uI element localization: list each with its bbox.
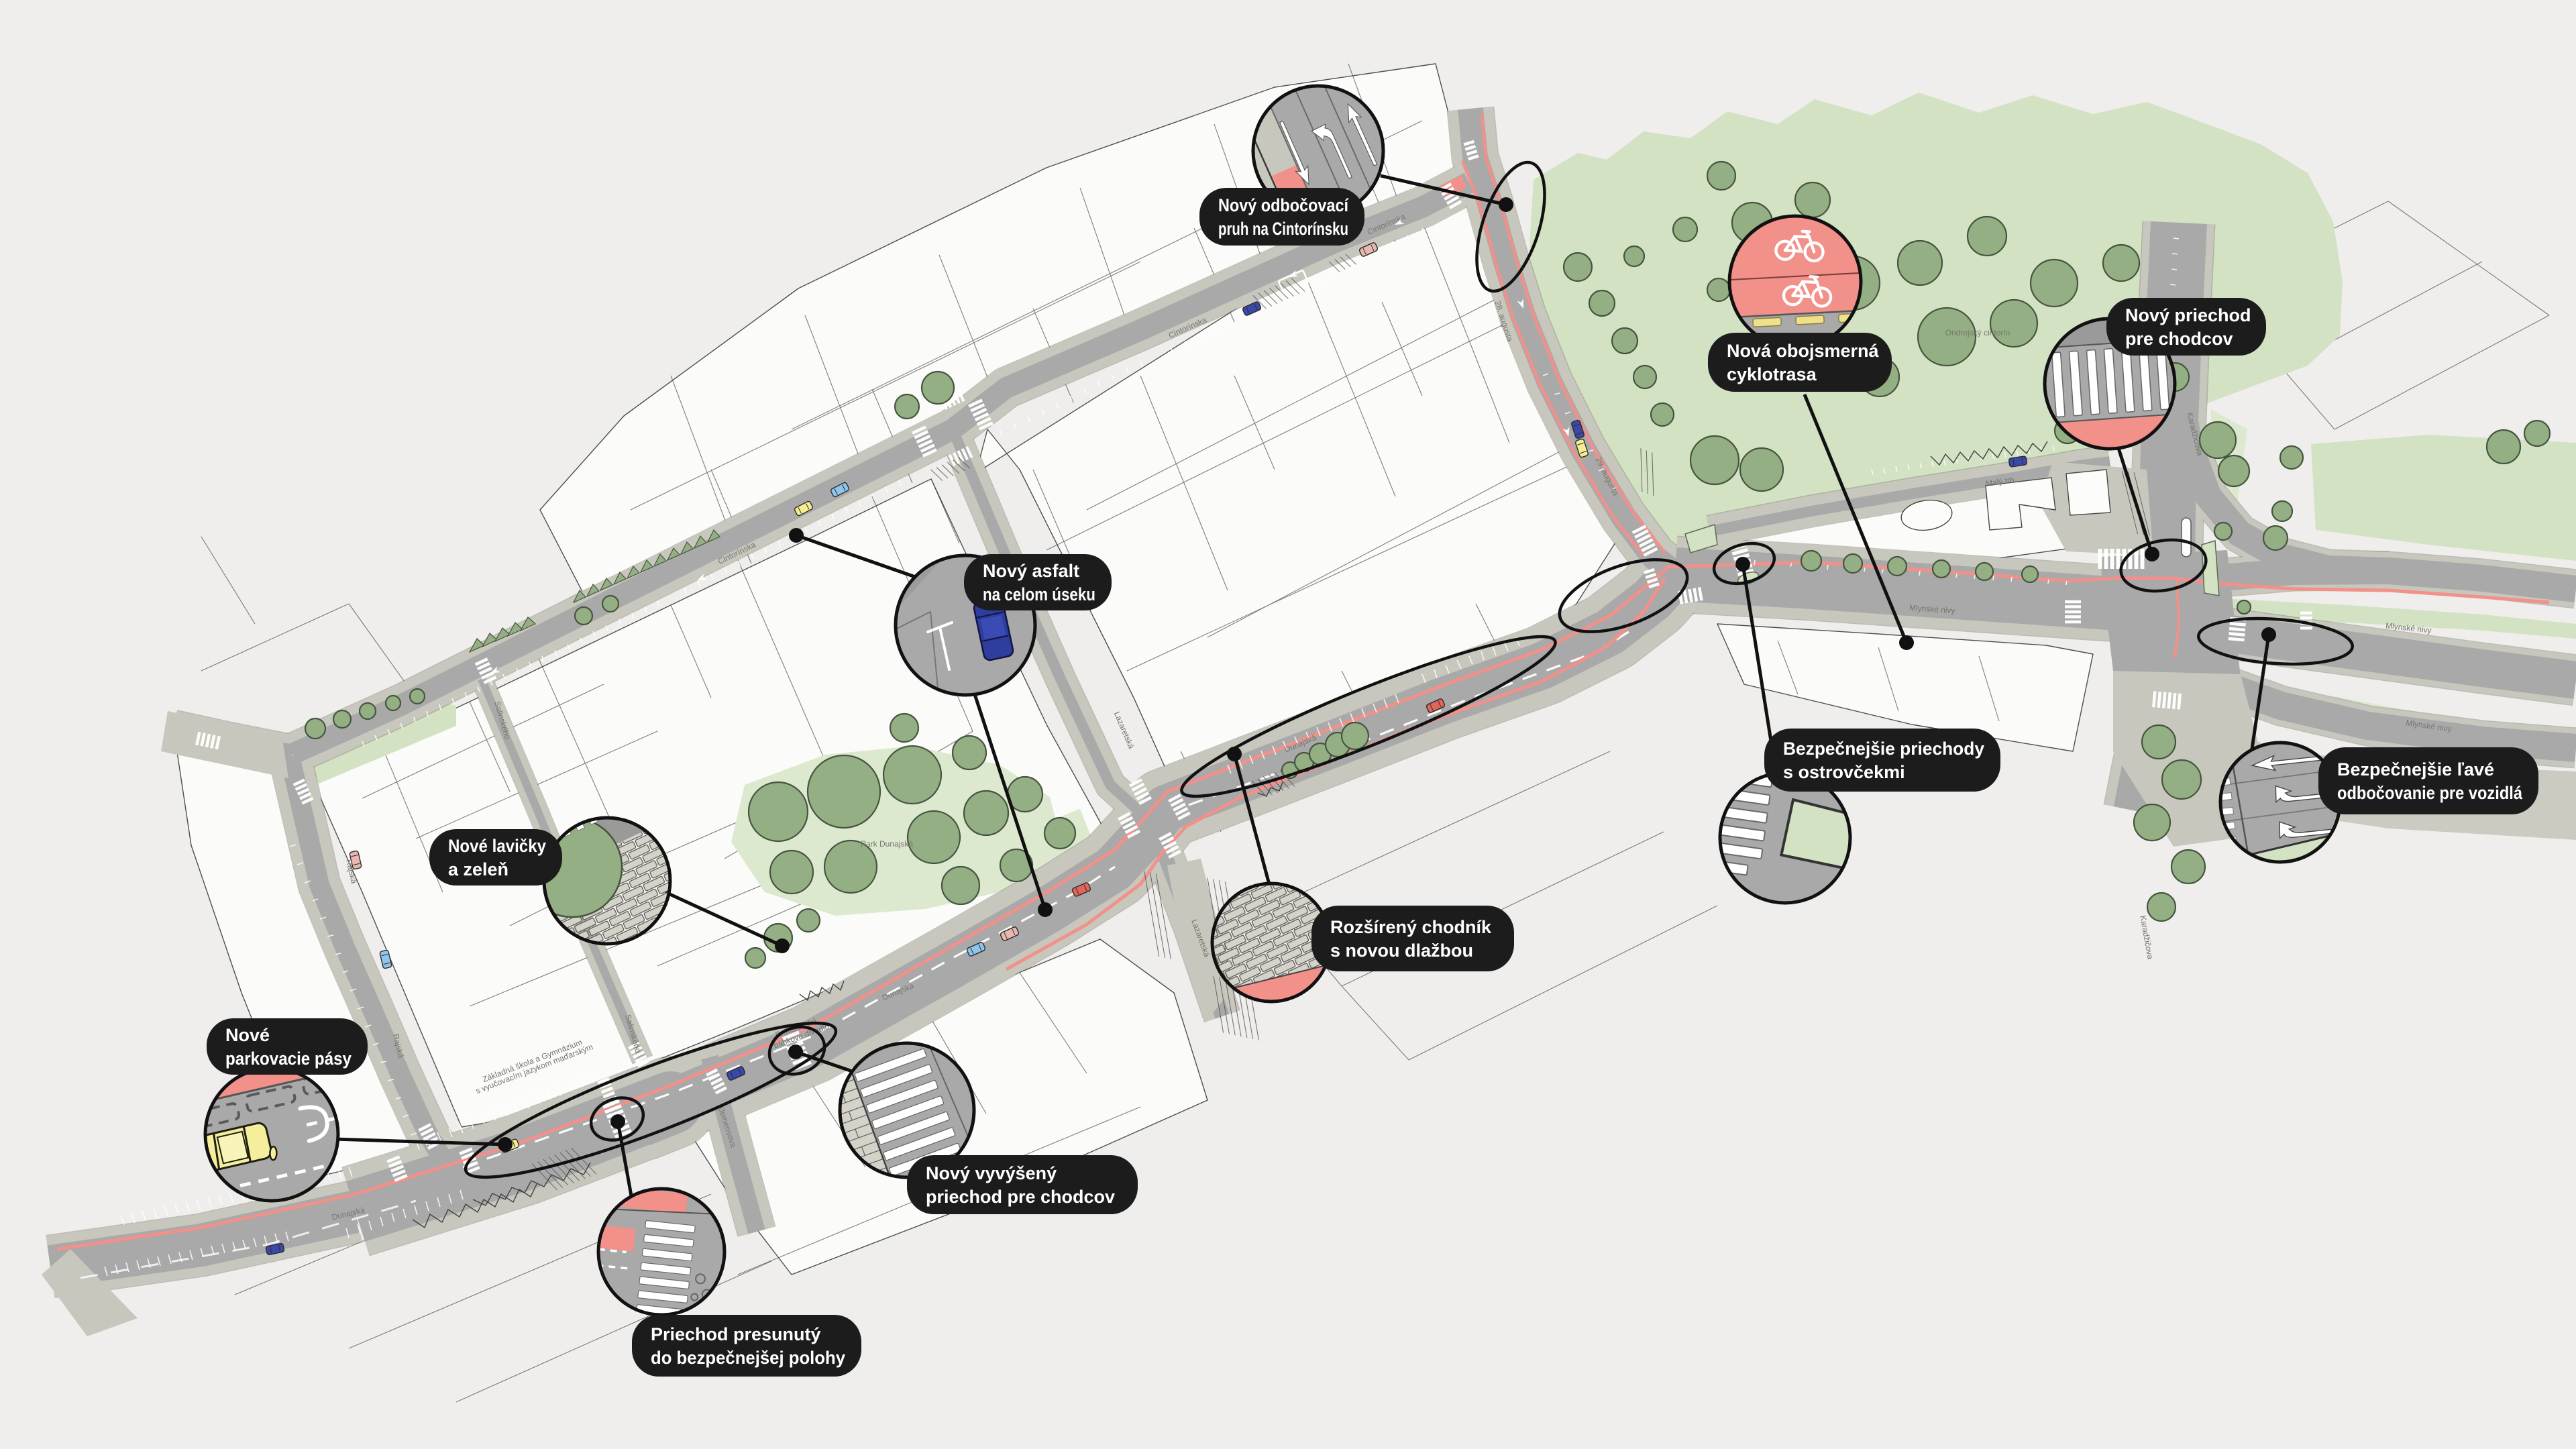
svg-text:s novou dlažbou: s novou dlažbou: [1330, 941, 1473, 961]
svg-text:Bezpečnejšie priechody: Bezpečnejšie priechody: [1783, 739, 1984, 759]
svg-text:Nové: Nové: [225, 1025, 270, 1045]
svg-text:Park Dunajská: Park Dunajská: [861, 839, 913, 849]
svg-text:parkovacie pásy: parkovacie pásy: [225, 1049, 352, 1069]
svg-text:do bezpečnejšej polohy: do bezpečnejšej polohy: [651, 1348, 845, 1368]
svg-text:odbočovanie pre vozidlá: odbočovanie pre vozidlá: [2337, 783, 2523, 803]
svg-text:s ostrovčekmi: s ostrovčekmi: [1783, 762, 1905, 782]
svg-text:Nové lavičky: Nové lavičky: [448, 836, 546, 856]
svg-text:pre chodcov: pre chodcov: [2125, 329, 2233, 349]
svg-text:pruh na Cintorínsku: pruh na Cintorínsku: [1218, 219, 1348, 239]
svg-text:Nový odbočovací: Nový odbočovací: [1218, 195, 1349, 215]
svg-text:Rozšírený chodník: Rozšírený chodník: [1330, 917, 1492, 937]
svg-text:na celom úseku: na celom úseku: [983, 584, 1095, 604]
svg-text:Priechod presunutý: Priechod presunutý: [651, 1324, 821, 1344]
svg-text:Nový vyvýšený: Nový vyvýšený: [926, 1163, 1057, 1183]
svg-text:priechod pre chodcov: priechod pre chodcov: [926, 1187, 1115, 1207]
svg-text:Ondrejský cintorín: Ondrejský cintorín: [1945, 328, 2010, 337]
svg-text:cyklotrasa: cyklotrasa: [1727, 364, 1817, 384]
svg-text:Nový asfalt: Nový asfalt: [983, 561, 1079, 581]
svg-text:Bezpečnejšie ľavé: Bezpečnejšie ľavé: [2337, 759, 2494, 780]
svg-text:a zeleň: a zeleň: [448, 859, 508, 879]
svg-text:Nový priechod: Nový priechod: [2125, 305, 2251, 325]
svg-text:Nová obojsmerná: Nová obojsmerná: [1727, 341, 1880, 361]
